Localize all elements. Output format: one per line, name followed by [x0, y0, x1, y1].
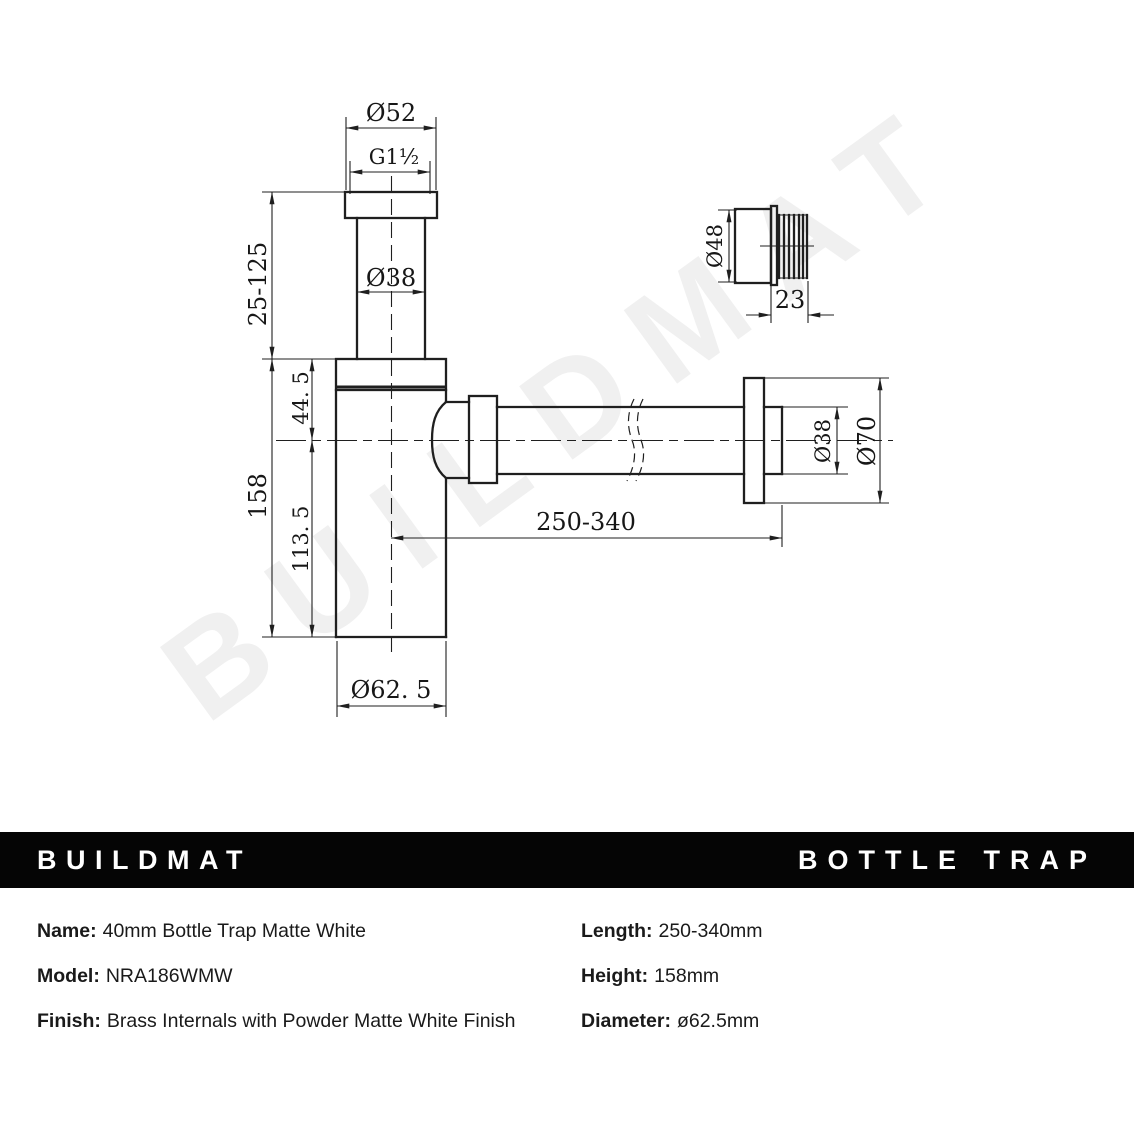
spec-column-left: Name:40mm Bottle Trap Matte White Model:…: [37, 920, 537, 1055]
spec-model: Model:NRA186WMW: [37, 965, 537, 988]
dim-inlet-height-range: 25-125: [244, 242, 272, 326]
spec-diameter: Diameter:ø62.5mm: [581, 1010, 1081, 1033]
dim-total-height: 158: [244, 473, 272, 519]
dim-wall-flange-diameter: Ø70: [853, 416, 881, 466]
spec-height-value: 158mm: [654, 965, 719, 987]
dim-adapter-diameter: Ø48: [703, 224, 727, 268]
spec-name-value: 40mm Bottle Trap Matte White: [103, 920, 366, 942]
dim-thread-size: G1½: [369, 145, 420, 169]
spec-height: Height:158mm: [581, 965, 1081, 988]
spec-name: Name:40mm Bottle Trap Matte White: [37, 920, 537, 943]
dim-lower-height: 113. 5: [289, 506, 313, 573]
spec-height-label: Height:: [581, 965, 648, 987]
product-type-title: BOTTLE TRAP: [798, 845, 1097, 876]
product-spec-sheet: BUILDMAT: [0, 0, 1134, 1134]
spec-model-label: Model:: [37, 965, 100, 987]
spec-finish: Finish:Brass Internals with Powder Matte…: [37, 1010, 537, 1033]
spec-name-label: Name:: [37, 920, 97, 942]
header-bar: BUILDMAT BOTTLE TRAP: [0, 832, 1134, 888]
spec-length-value: 250-340mm: [658, 920, 762, 942]
brand-name: BUILDMAT: [37, 845, 252, 876]
spec-column-right: Length:250-340mm Height:158mm Diameter:ø…: [581, 920, 1081, 1055]
spec-length: Length:250-340mm: [581, 920, 1081, 943]
spec-model-value: NRA186WMW: [106, 965, 233, 987]
dim-inlet-diameter: Ø38: [366, 264, 416, 292]
dim-top-flange-diameter: Ø52: [366, 99, 416, 127]
spec-finish-label: Finish:: [37, 1010, 101, 1032]
dim-upper-height: 44. 5: [289, 371, 313, 424]
technical-drawing: BUILDMAT: [0, 0, 1134, 832]
dim-adapter-thread-length: 23: [775, 286, 806, 314]
spec-length-label: Length:: [581, 920, 652, 942]
spec-finish-value: Brass Internals with Powder Matte White …: [107, 1010, 516, 1032]
spec-diameter-label: Diameter:: [581, 1010, 671, 1032]
dim-outlet-pipe-diameter: Ø38: [811, 419, 835, 463]
dim-body-diameter: Ø62. 5: [351, 676, 432, 704]
dim-outlet-length-range: 250-340: [536, 508, 636, 536]
watermark-text: BUILDMAT: [136, 70, 992, 748]
spec-diameter-value: ø62.5mm: [677, 1010, 759, 1032]
